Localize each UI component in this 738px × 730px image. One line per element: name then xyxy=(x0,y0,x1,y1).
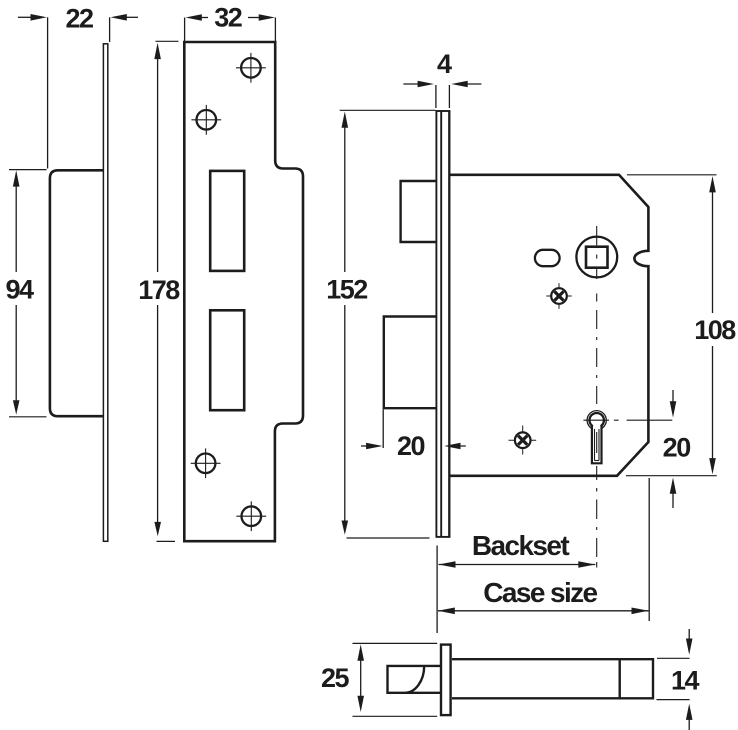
svg-text:20: 20 xyxy=(397,431,425,461)
svg-text:Backset: Backset xyxy=(472,530,569,561)
svg-text:14: 14 xyxy=(671,665,700,695)
svg-text:32: 32 xyxy=(214,2,242,32)
svg-text:25: 25 xyxy=(321,663,350,693)
svg-text:108: 108 xyxy=(694,315,736,345)
svg-text:152: 152 xyxy=(326,275,367,305)
svg-text:178: 178 xyxy=(138,275,180,305)
svg-text:Case size: Case size xyxy=(483,577,597,608)
svg-text:4: 4 xyxy=(437,49,452,79)
svg-text:94: 94 xyxy=(5,275,34,305)
svg-text:22: 22 xyxy=(65,4,93,34)
svg-text:20: 20 xyxy=(663,433,691,463)
